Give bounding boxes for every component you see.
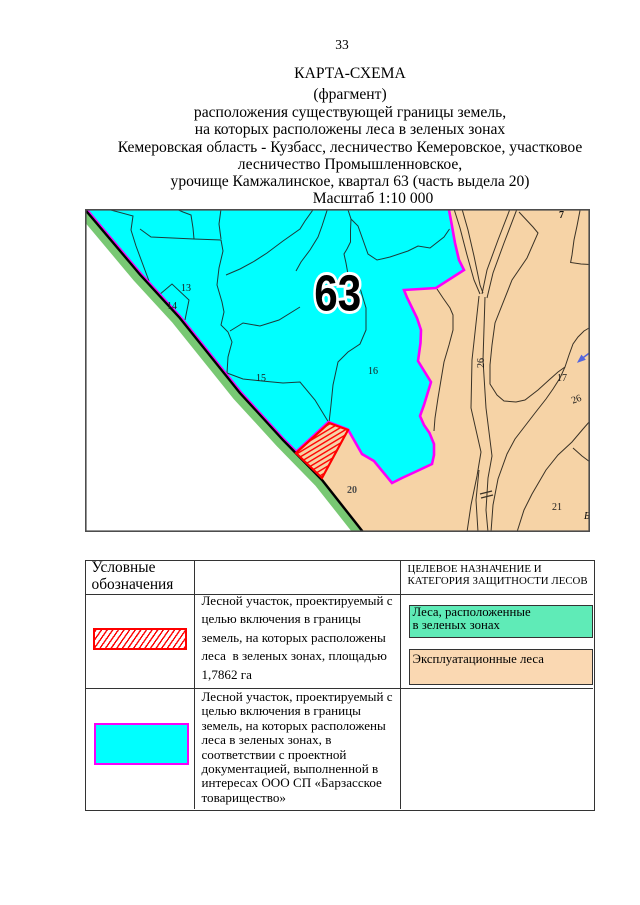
- svg-text:21: 21: [552, 502, 562, 513]
- svg-text:7: 7: [559, 210, 564, 221]
- svg-text:13: 13: [181, 283, 191, 294]
- svg-text:26: 26: [476, 358, 487, 368]
- svg-text:15: 15: [256, 373, 266, 384]
- svg-text:14: 14: [167, 301, 177, 312]
- svg-text:17: 17: [557, 373, 567, 384]
- svg-text:63: 63: [314, 265, 361, 321]
- svg-text:20: 20: [347, 485, 357, 496]
- svg-text:16: 16: [368, 366, 378, 377]
